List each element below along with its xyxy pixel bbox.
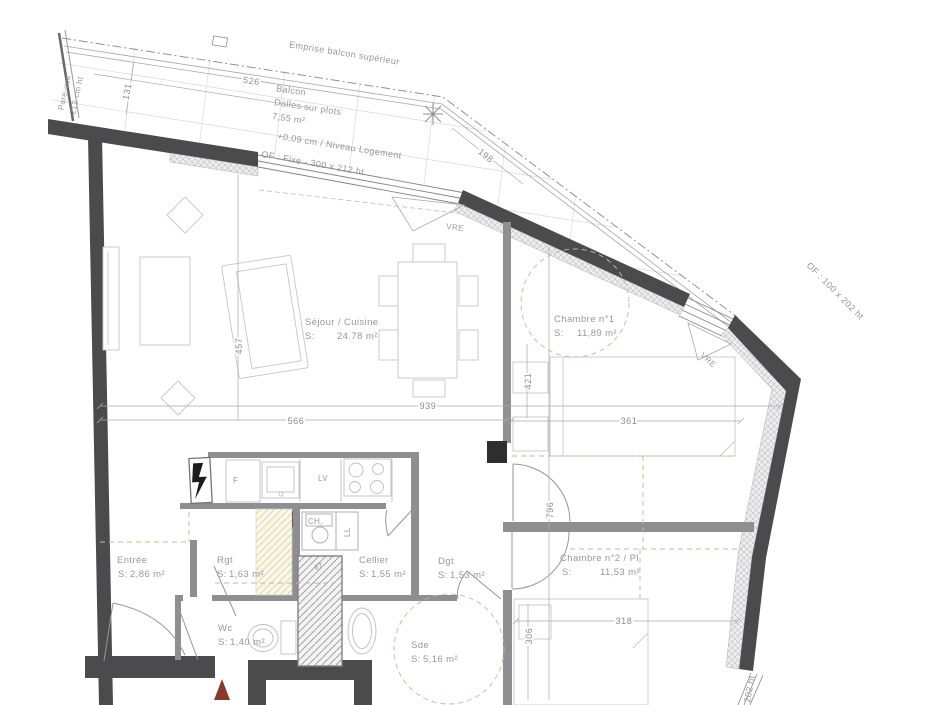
dim-939: 939 [420, 401, 437, 411]
rgt-s: S: [217, 569, 227, 580]
vre-sejour-label: VRE [446, 222, 465, 233]
wc-area: 1,40 m² [230, 637, 265, 648]
dim-131: 131 [121, 82, 134, 100]
technical-shaft [298, 556, 342, 666]
window-bottom-right-label: 202 ht [742, 675, 757, 704]
chambre2-area: 11,53 m² [600, 567, 640, 578]
chambre2-name: Chambre n°2 / Pl [560, 553, 639, 564]
sde-name: Sde [411, 640, 429, 651]
window-chambre1-label: OF : 100 x 202 ht [805, 260, 866, 321]
dgt-s: S: [438, 570, 448, 581]
entrance-arrow-icon [214, 679, 230, 700]
dgt-area: 1,53 m² [450, 570, 485, 581]
rgt-storage-hatch [256, 509, 292, 595]
sde-area: 5,16 m² [423, 654, 458, 665]
dim-421: 421 [523, 373, 533, 390]
sun-star-icon [423, 103, 443, 125]
dim-318: 318 [616, 616, 633, 626]
dim-566: 566 [288, 416, 305, 426]
electrical-panel [189, 457, 212, 503]
floor-plan-canvas: Emprise balcon supérieur Balcon Dalles s… [0, 0, 940, 705]
washbasin [348, 608, 376, 654]
entree-s: S: [118, 569, 128, 580]
chambre1-area: 11,89 m² [577, 328, 617, 339]
dim-457: 457 [234, 338, 244, 355]
sejour-name: Séjour / Cuisine [305, 317, 378, 328]
bedroom2-furniture [514, 599, 648, 705]
cellier-name: Cellier [359, 555, 389, 566]
dishwasher-label: LV [318, 474, 328, 483]
balcony-tile-grid [40, 39, 760, 288]
entree-area: 2,86 m² [130, 569, 165, 580]
chambre2-s: S: [562, 567, 572, 578]
chambre1-s: S: [554, 328, 564, 339]
dim-526: 526 [242, 75, 260, 88]
balcony-edge-marker [212, 36, 227, 47]
balcony-area-label: 7,55 m² [271, 111, 305, 126]
washing-machine-label: LL [343, 527, 352, 537]
rgt-name: Rgt [217, 555, 233, 566]
entrance-door-swing [113, 603, 185, 655]
chambre1-name: Chambre n°1 [554, 314, 614, 325]
bedroom1-door-swing [513, 464, 570, 522]
cellier-s: S: [359, 569, 369, 580]
living-room-furniture [103, 197, 478, 415]
balcony-label-block: Balcon Dalles sur plots 7,55 m² [271, 83, 344, 131]
kitchen-counter [226, 459, 392, 502]
dining-table [398, 262, 457, 378]
emprise-balcon-label: Emprise balcon supérieur [289, 39, 401, 66]
cellier-door-swing [386, 510, 388, 536]
entree-name: Entrée [117, 555, 147, 566]
fridge-label: F [233, 476, 238, 485]
floor-plan-svg: Emprise balcon supérieur Balcon Dalles s… [0, 0, 940, 705]
cellier-door-leaf [388, 510, 412, 536]
sejour-area: 24.78 m² [337, 331, 378, 342]
boiler-label: CH. [308, 517, 323, 526]
sejour-s: S: [305, 331, 315, 342]
fixed-window-label: OF : Fixe - 300 x 212 ht [261, 149, 365, 177]
rgt-area: 1,63 m² [229, 569, 264, 580]
wc-s: S: [218, 637, 228, 648]
dim-306: 306 [524, 628, 534, 645]
structural-column [487, 441, 507, 463]
dim-796: 796 [545, 502, 555, 519]
sde-s: S: [411, 654, 421, 665]
balcony-name-label: Balcon [276, 83, 307, 97]
dim-198: 198 [476, 147, 495, 165]
dim-361: 361 [621, 416, 638, 426]
bedroom1-furniture [513, 357, 735, 456]
cellier-area: 1,55 m² [371, 569, 406, 580]
wc-name: Wc [218, 623, 233, 634]
dgt-name: Dgt [438, 556, 454, 567]
